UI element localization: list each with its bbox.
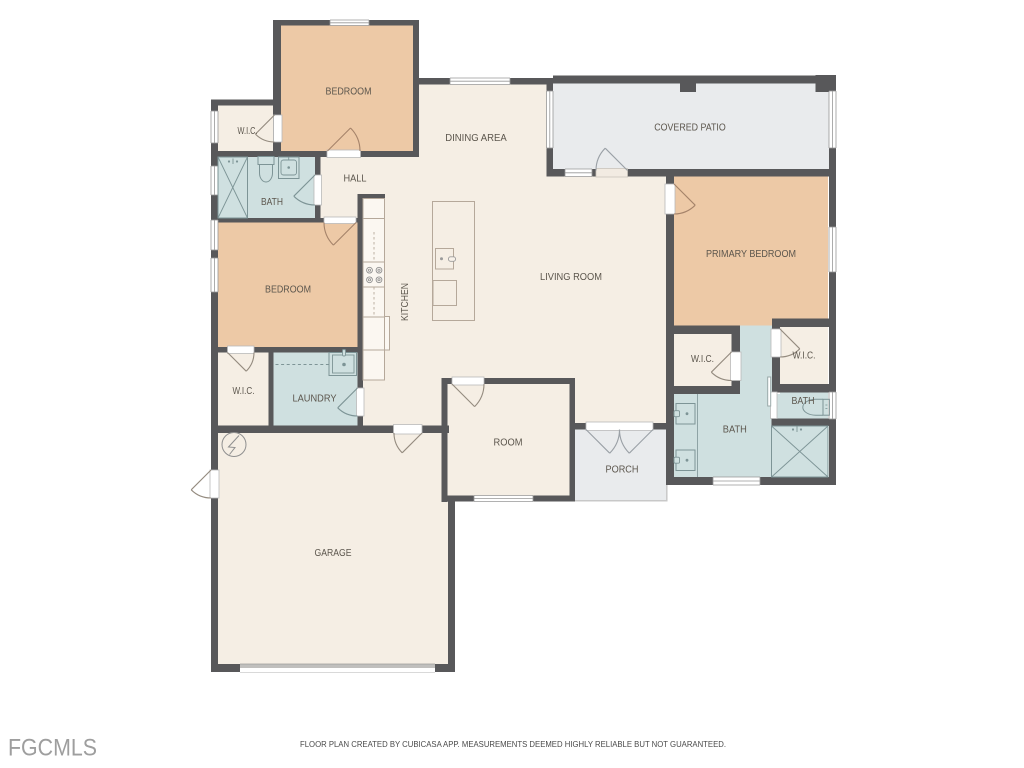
svg-text:GARAGE: GARAGE [315, 548, 352, 559]
svg-text:BATH: BATH [723, 424, 747, 435]
svg-text:ROOM: ROOM [494, 438, 523, 449]
svg-text:W.I.C.: W.I.C. [793, 351, 816, 362]
svg-text:PRIMARY BEDROOM: PRIMARY BEDROOM [706, 249, 796, 260]
svg-text:COVERED PATIO: COVERED PATIO [654, 123, 726, 134]
svg-text:W.I.C.: W.I.C. [233, 386, 255, 397]
svg-text:DINING AREA: DINING AREA [445, 133, 507, 144]
svg-text:KITCHEN: KITCHEN [400, 283, 411, 321]
svg-text:FGCMLS: FGCMLS [8, 735, 97, 762]
svg-text:BEDROOM: BEDROOM [265, 285, 311, 296]
svg-text:BEDROOM: BEDROOM [326, 87, 372, 98]
svg-text:FLOOR PLAN CREATED BY CUBICASA: FLOOR PLAN CREATED BY CUBICASA APP. MEAS… [300, 740, 726, 749]
svg-text:BATH: BATH [261, 197, 283, 208]
svg-text:W.I.C.: W.I.C. [238, 126, 258, 137]
svg-text:LAUNDRY: LAUNDRY [293, 394, 337, 405]
svg-text:BATH: BATH [792, 396, 815, 407]
svg-text:W.I.C.: W.I.C. [691, 354, 714, 365]
svg-text:LIVING ROOM: LIVING ROOM [540, 272, 602, 283]
svg-text:HALL: HALL [344, 174, 367, 185]
svg-text:PORCH: PORCH [606, 465, 639, 476]
